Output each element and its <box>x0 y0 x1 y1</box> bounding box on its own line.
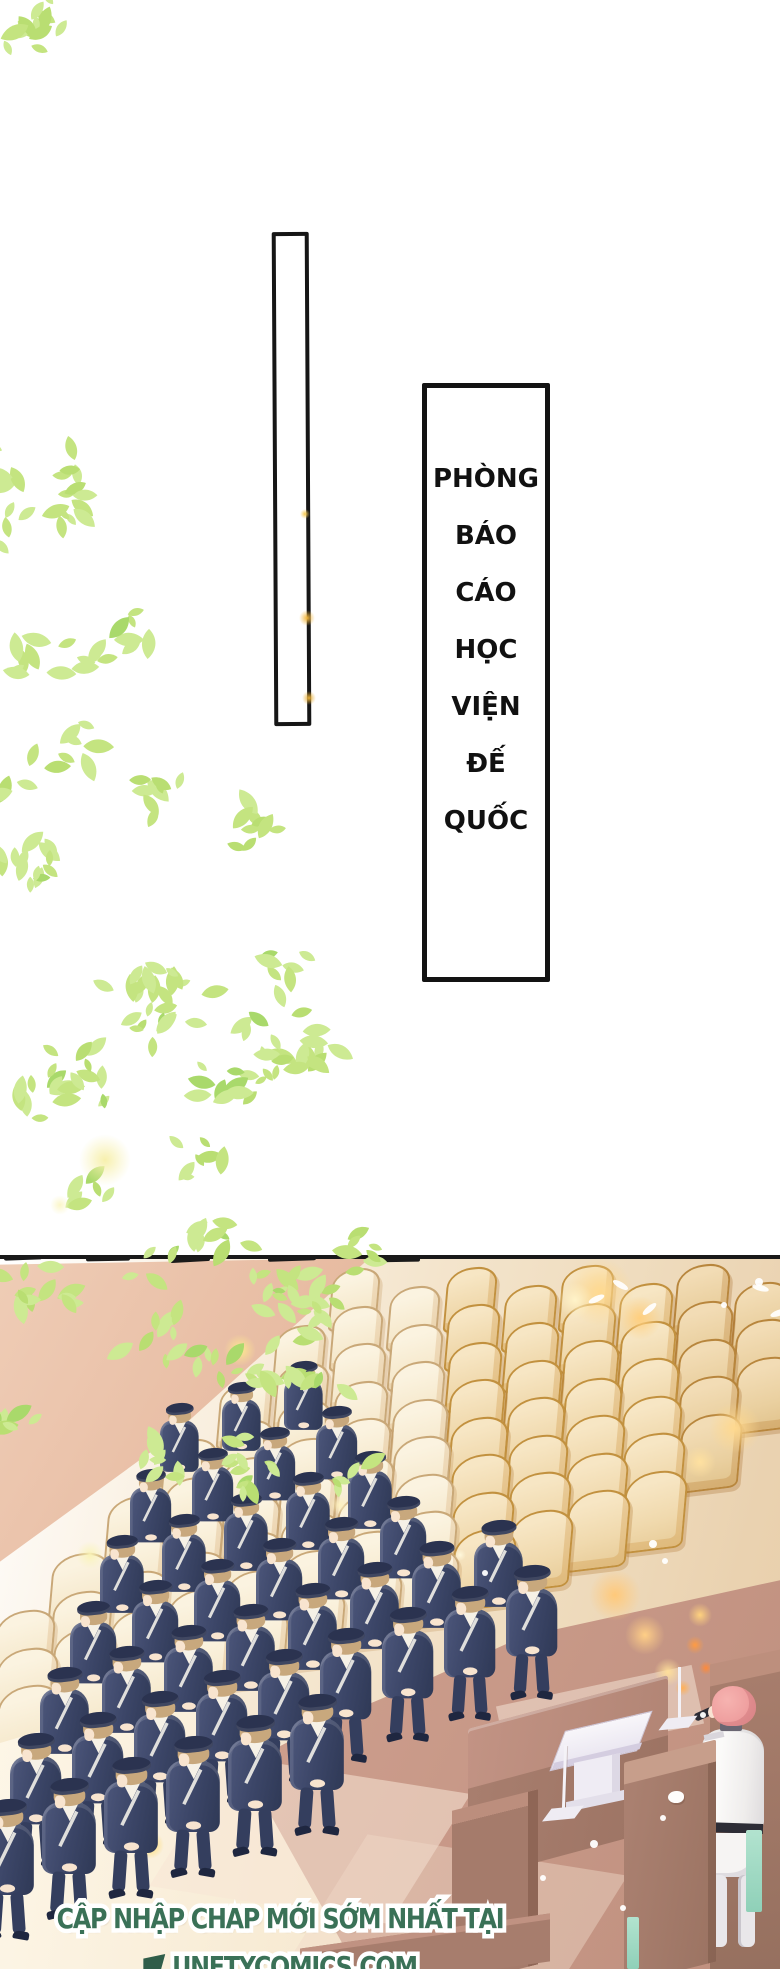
speech-line: CÁO <box>455 564 516 621</box>
caption-line-2-text: UNETYCOMICS.COM <box>172 1950 417 1969</box>
soldier-beret <box>0 1797 28 1817</box>
speech-line: BÁO <box>455 507 517 564</box>
sketch-stroke <box>4 1255 42 1261</box>
foliage-cluster <box>0 0 70 58</box>
white-petal <box>612 1278 630 1292</box>
caption-line-1: CẬP NHẬP CHAP MỚI SỚM NHẤT TẠI CẬP NHẬP … <box>42 1896 518 1942</box>
site-logo-icon <box>143 1954 165 1969</box>
speech-line: VIỆN <box>451 678 520 735</box>
microphone-stand <box>678 1667 681 1721</box>
caption-line-2: UNETYCOMICS.COM UNETYCOMICS.COM <box>42 1944 518 1969</box>
foliage-cluster <box>0 1050 310 1280</box>
seated-soldier <box>290 1694 344 1841</box>
sketch-stroke <box>86 1256 130 1262</box>
speaker-pink-hair-blob <box>712 1686 756 1726</box>
sketch-stroke <box>225 1255 259 1258</box>
mint-accent-bar <box>746 1830 762 1912</box>
speech-box: PHÒNGBÁOCÁOHỌCVIỆNĐẾQUỐC <box>422 383 550 982</box>
white-speck <box>662 1558 668 1564</box>
bottom-caption: CẬP NHẬP CHAP MỚI SỚM NHẤT TẠI CẬP NHẬP … <box>0 1896 560 1969</box>
speech-line: QUỐC <box>444 792 528 849</box>
speech-line: ĐẾ <box>466 735 506 792</box>
seated-soldier <box>506 1565 557 1705</box>
light-glow <box>79 1134 131 1186</box>
seated-soldier <box>228 1715 282 1862</box>
light-glow <box>50 1195 70 1215</box>
seated-soldier <box>104 1757 158 1904</box>
auditorium-scene <box>0 1255 780 1969</box>
speaker-glove-hand <box>668 1791 684 1803</box>
seated-soldier <box>382 1607 433 1747</box>
speech-line: HỌC <box>455 621 518 678</box>
mint-accent-bar <box>627 1917 639 1969</box>
empty-panel-rect <box>272 232 312 726</box>
seated-soldier <box>166 1736 220 1883</box>
seated-soldier <box>444 1586 495 1726</box>
sketch-stroke <box>368 1257 420 1263</box>
comic-page: PHÒNGBÁOCÁOHỌCVIỆNĐẾQUỐC <box>0 0 780 1969</box>
speech-line: PHÒNG <box>433 450 539 507</box>
caption-line-1-text: CẬP NHẬP CHAP MỚI SỚM NHẤT TẠI <box>57 1902 504 1935</box>
foliage-cluster <box>0 455 160 715</box>
